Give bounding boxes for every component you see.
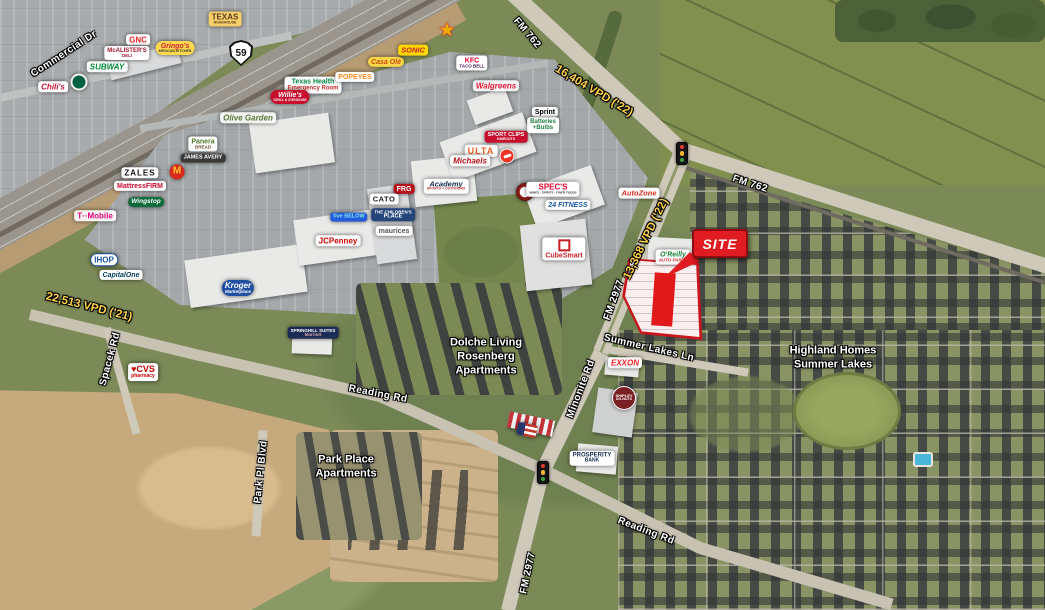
logo-olive-garden: Olive Garden bbox=[220, 112, 276, 123]
region-apartments-parkplace bbox=[296, 432, 422, 540]
logo-24-hour-fitness: 24 FITNESS bbox=[545, 200, 590, 210]
logo-texas-roadhouse: TEXASROADHOUSE bbox=[209, 11, 242, 26]
logo-springhill-suites: SPRINGHILL SUITESMarriott bbox=[288, 327, 339, 339]
logo-cvs-pharmacy: ♥CVSpharmacy bbox=[128, 363, 158, 381]
logo-sprint: Sprint bbox=[532, 107, 558, 117]
logo-panera-bread: PaneraBREAD bbox=[188, 136, 217, 151]
logo-gringos: Gringo'sMEXICAN KITCHEN bbox=[156, 41, 195, 55]
logo-jcpenney: JCPenney bbox=[316, 235, 361, 246]
site-parcel-building bbox=[651, 272, 675, 326]
logo-five-below: five BELOW bbox=[330, 213, 367, 222]
area-label-dolche-living: Dolche Living Rosenberg Apartments bbox=[450, 336, 522, 377]
logo-prosperity-bank: PROSPERITYBANK bbox=[570, 451, 615, 466]
logo-willies-grill: Willie'sGRILL & ICEHOUSE bbox=[270, 90, 309, 104]
logo-ihop: IHOP bbox=[90, 253, 118, 266]
region-neighborhood-east bbox=[618, 330, 1045, 610]
logo-capital-one: CapitalOne bbox=[100, 270, 143, 280]
traffic-light-icon bbox=[676, 142, 688, 165]
traffic-light-icon bbox=[537, 461, 549, 484]
logo-casa-ole: Casa Olé bbox=[368, 57, 404, 67]
logo-walgreens: Walgreens bbox=[473, 80, 519, 91]
logo-kroger-marketplace: KrogerMarketplace bbox=[222, 280, 254, 296]
logo-cato: CATO bbox=[370, 194, 399, 205]
lake-summer-lakes bbox=[793, 372, 901, 450]
logo-sport-clips: SPORT CLIPSHAIRCUTS bbox=[485, 131, 528, 143]
logo-exxon: EXXON bbox=[608, 357, 642, 368]
logo-pizza-hut bbox=[500, 149, 515, 164]
logo-frg: FRG bbox=[394, 184, 415, 194]
area-label-park-place: Park Place Apartments bbox=[315, 453, 376, 481]
logo-gnc: GNC bbox=[126, 34, 150, 45]
logo-mcalisters-deli: McALISTER'SDELI bbox=[104, 46, 149, 60]
region-treeline-top bbox=[835, 0, 1045, 42]
logo-specs: SPEC'SWINES · SPIRITS · FINER FOODS bbox=[526, 182, 579, 197]
community-pool bbox=[913, 452, 933, 467]
logo-cubesmart: CubeSmart bbox=[542, 237, 585, 260]
logo-mattress-firm: MattressFIRM bbox=[114, 181, 166, 191]
logo-mcdonalds: M bbox=[170, 165, 185, 180]
logo-chilis: Chili's bbox=[38, 81, 68, 92]
us-59-route-number: 59 bbox=[235, 48, 246, 59]
logo-starbucks bbox=[71, 74, 88, 91]
logo-t-mobile: T··Mobile bbox=[74, 210, 116, 221]
logo-james-avery: JAMES AVERY bbox=[181, 154, 226, 163]
logo-zales: ZALES bbox=[121, 167, 158, 178]
site-callout-label: SITE bbox=[702, 236, 737, 252]
logo-subway: SUBWAY bbox=[87, 61, 128, 72]
site-callout: SITE bbox=[692, 229, 748, 258]
logo-autozone: AutoZone bbox=[619, 188, 660, 199]
logo-shipley-donuts: SHIPLEYDO-NUTS bbox=[612, 386, 636, 410]
logo-wingstop: Wingstop bbox=[128, 197, 164, 207]
aerial-map: SITE 59 Commercial Dr FM 762 FM 762 FM 2… bbox=[0, 0, 1045, 610]
logo-kfc-taco-bell: KFCTACO BELL bbox=[456, 55, 487, 70]
logo-popeyes: POPEYES bbox=[335, 72, 374, 82]
logo-childrens-place: THE CHILDREN'SPLACE bbox=[371, 208, 415, 221]
logo-sonic: SONIC bbox=[398, 45, 428, 56]
logo-michaels: Michaels bbox=[450, 155, 490, 166]
logo-maurices: maurices bbox=[376, 226, 413, 236]
logo-batteries-plus-bulbs: Batteries+Bulbs bbox=[527, 117, 559, 133]
area-label-highland-homes: Highland Homes Summer Lakes bbox=[790, 344, 877, 372]
logo-academy-sports: AcademySPORTS + OUTDOORS bbox=[424, 179, 469, 194]
logo-carls-jr-star: ★ bbox=[436, 20, 457, 41]
